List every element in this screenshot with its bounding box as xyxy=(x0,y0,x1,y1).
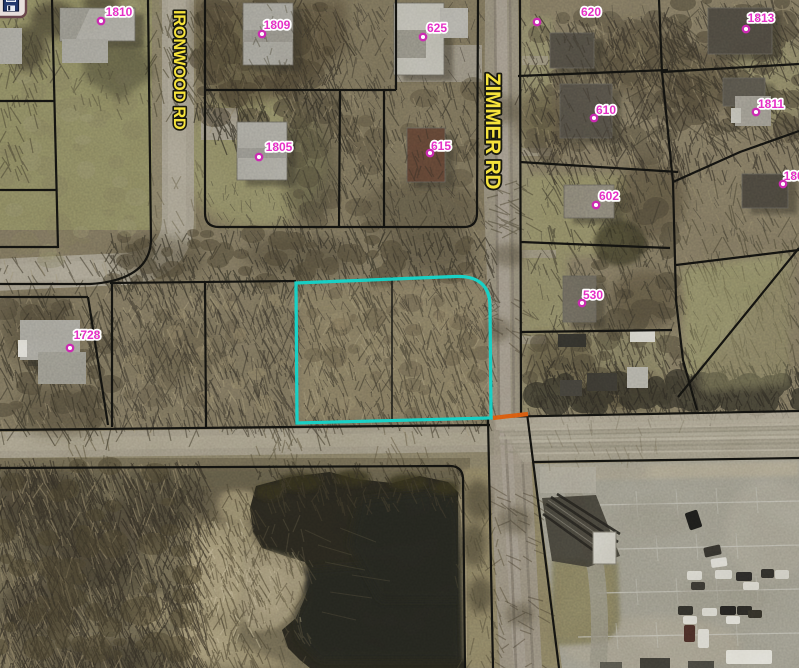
svg-text:ZIMMER RD: ZIMMER RD xyxy=(481,73,504,189)
svg-text:625: 625 xyxy=(427,21,447,35)
svg-text:1809: 1809 xyxy=(264,18,291,32)
svg-text:IRONWOOD RD: IRONWOOD RD xyxy=(170,10,188,130)
svg-text:615: 615 xyxy=(431,139,451,153)
svg-text:1728: 1728 xyxy=(74,328,101,342)
svg-text:1810: 1810 xyxy=(106,5,133,19)
svg-text:1813: 1813 xyxy=(748,11,775,25)
svg-text:620: 620 xyxy=(581,5,601,19)
svg-text:1811: 1811 xyxy=(758,97,784,111)
svg-text:610: 610 xyxy=(596,103,616,117)
svg-text:602: 602 xyxy=(599,189,619,203)
svg-text:1805: 1805 xyxy=(266,140,293,154)
svg-text:530: 530 xyxy=(583,288,603,302)
